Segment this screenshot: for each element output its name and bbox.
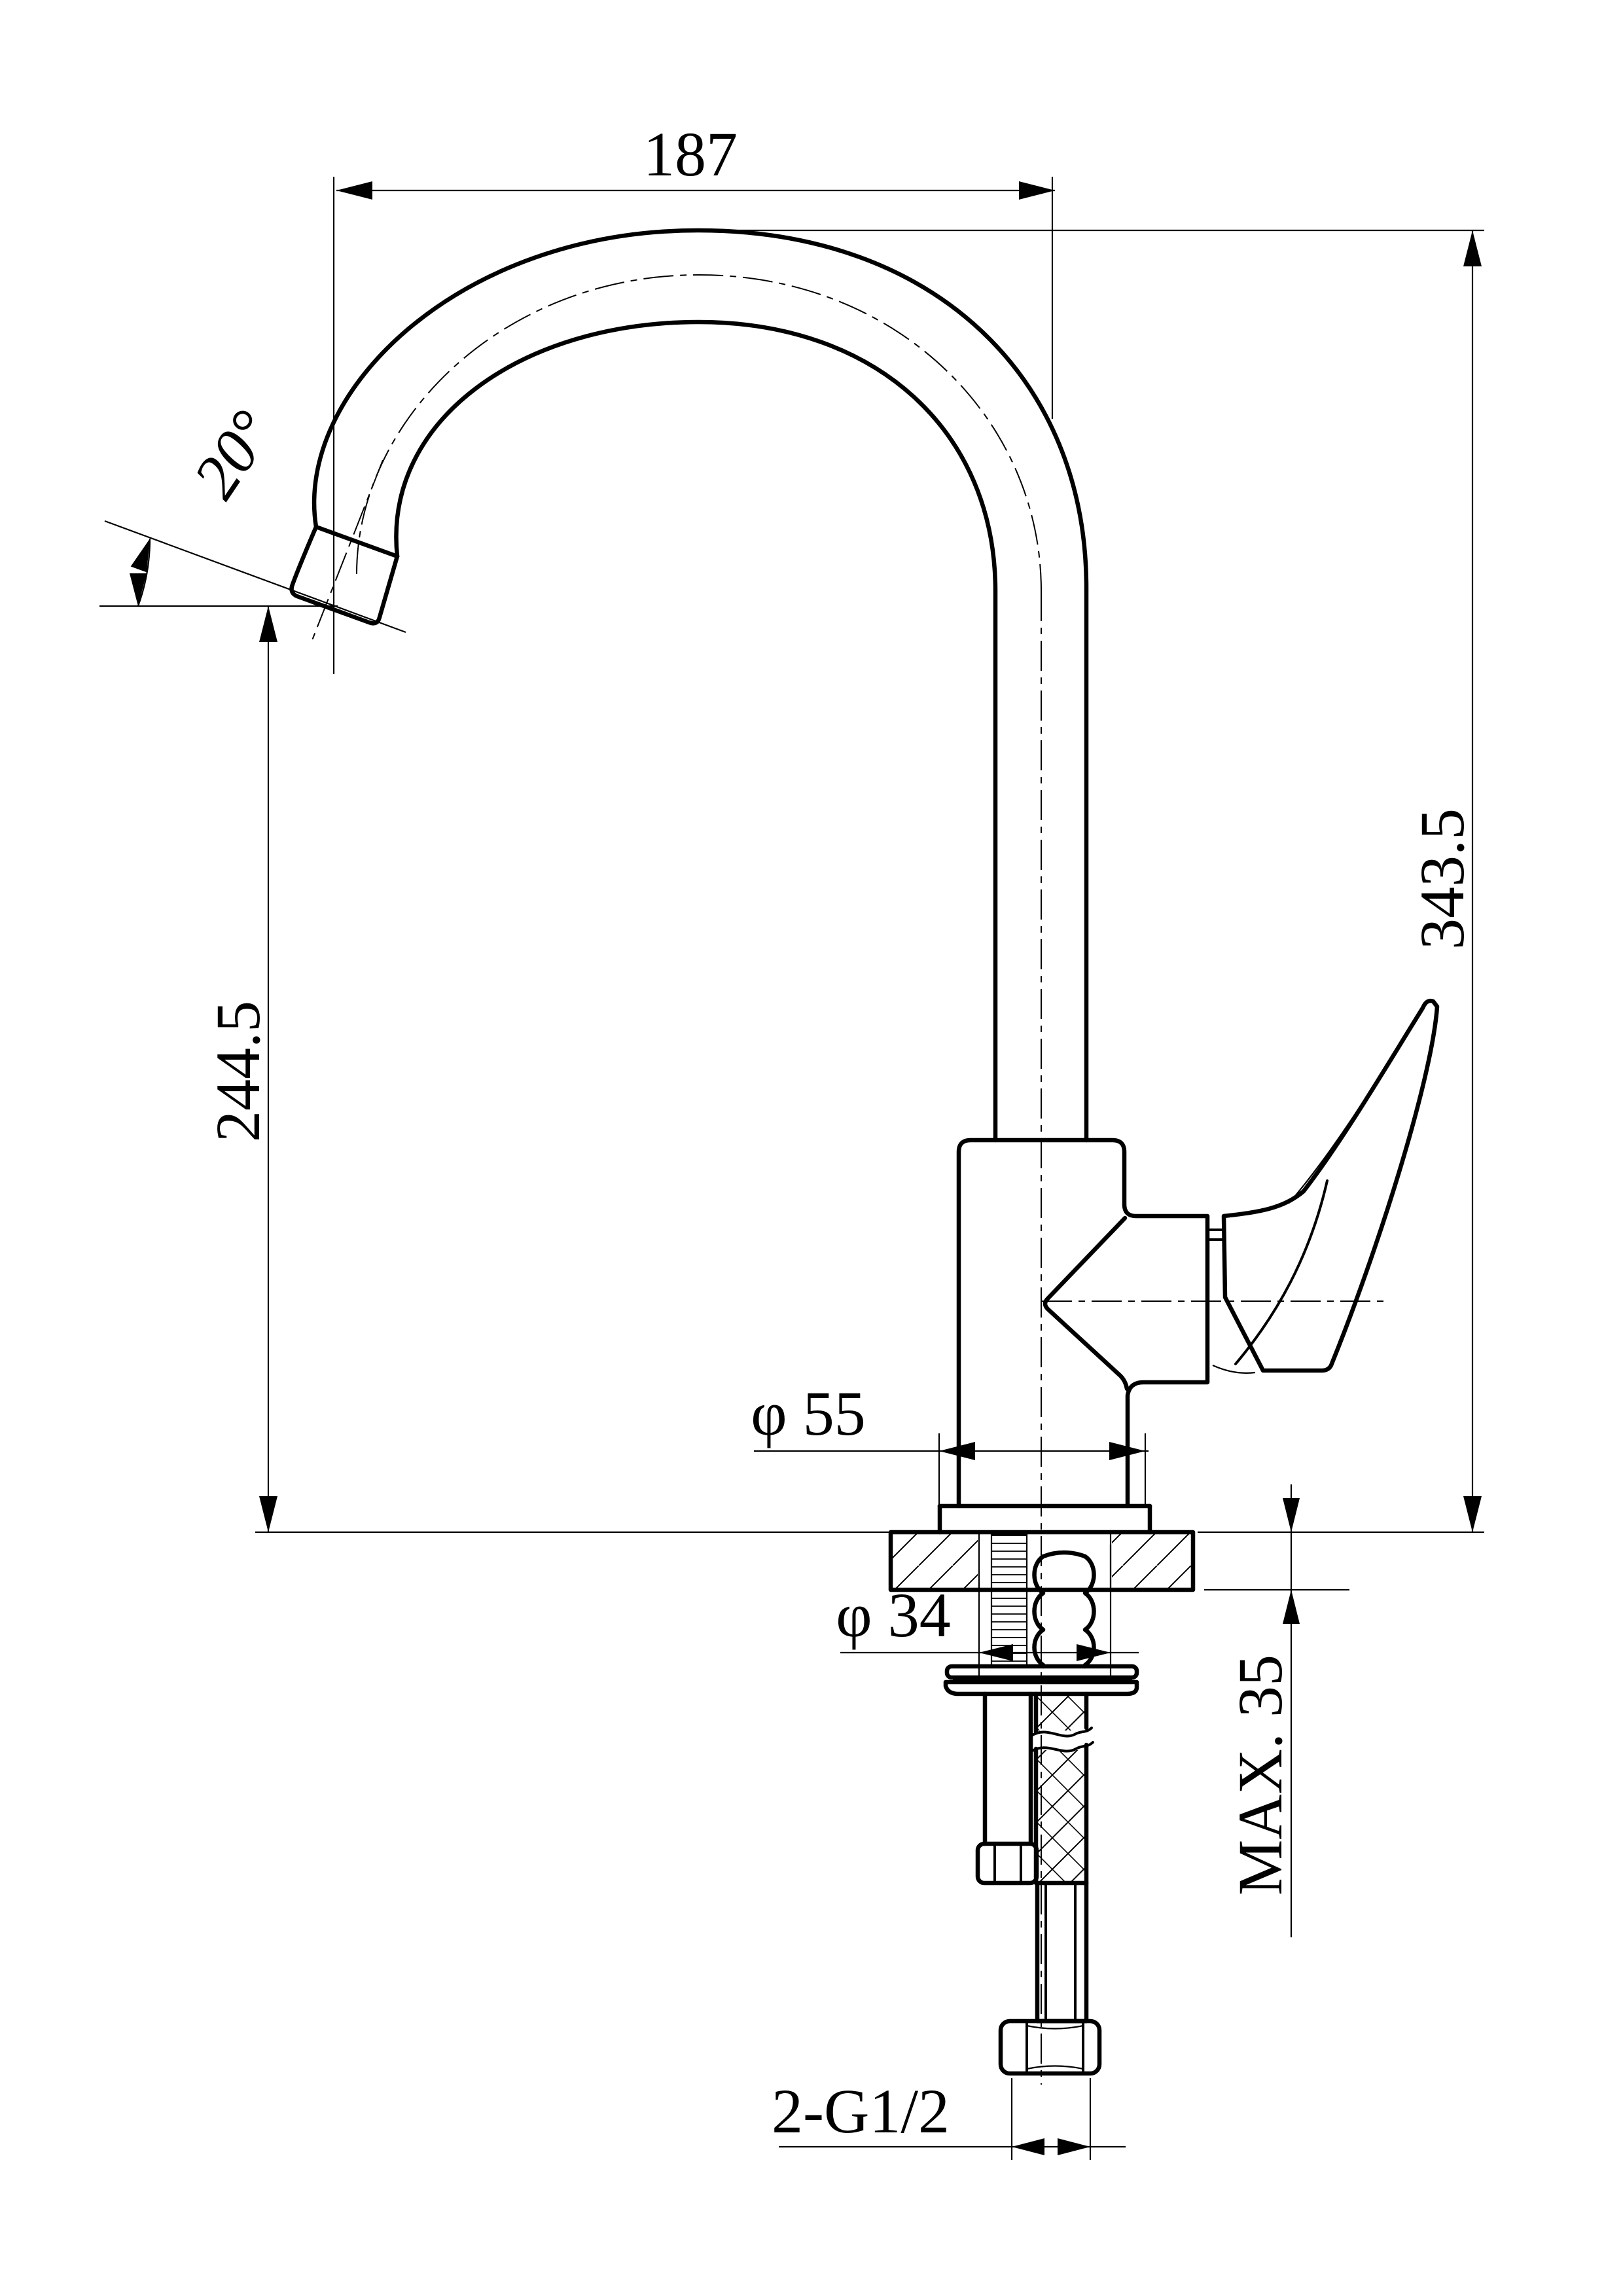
washer-plate-top (947, 1666, 1137, 1677)
faucet-technical-drawing: 187 20° 244.5 343.5 (0, 0, 1623, 2296)
dim-thread-spec-label: 2-G1/2 (772, 2076, 950, 2146)
hose-hex-nut (1001, 2021, 1099, 2073)
handle-base-arc (1213, 1365, 1255, 1373)
spout-outer-edge (314, 230, 1086, 1140)
dim-deck-thickness-label: MAX. 35 (1225, 1655, 1295, 1895)
hose-coupling-sleeve (1037, 1883, 1086, 2021)
handle-scoop-line (1236, 1181, 1327, 1364)
body-cone-notch (1045, 1218, 1127, 1389)
dim-spout-angle: 20° (99, 398, 406, 632)
dim-spout-reach: 187 (334, 119, 1055, 674)
lever-handle (1213, 1001, 1437, 1373)
centerlines (312, 275, 1384, 2085)
handle-outline (1224, 1001, 1437, 1371)
dim-total-height: 343.5 (704, 230, 1484, 1532)
dim-spout-reach-label: 187 (643, 119, 738, 189)
counter-hatch-right (1112, 1534, 1192, 1588)
hose-braid-lower (1036, 1750, 1086, 1883)
dimensions: 187 20° 244.5 343.5 (99, 119, 1484, 2160)
spout-inner-edge (396, 322, 995, 1140)
dim-deck-thickness: MAX. 35 (1204, 1484, 1349, 1937)
base-ring (940, 1506, 1150, 1532)
gooseneck-spout (314, 230, 1086, 1140)
dim-thread-spec: 2-G1/2 (772, 2076, 1126, 2160)
dim-spout-angle-label: 20° (179, 398, 287, 510)
dim-hole-diameter-label: φ 34 (836, 1580, 950, 1650)
dim-body-diameter: φ 55 (751, 1378, 1149, 1505)
aerator-seam (316, 527, 397, 556)
dim-body-diameter-label: φ 55 (751, 1378, 865, 1448)
drawing-sheet: 187 20° 244.5 343.5 (0, 0, 1623, 2296)
mounting-stud-and-nut (978, 1694, 1037, 1883)
mounting-hex-nut (978, 1844, 1037, 1883)
dim-outlet-height-label: 244.5 (203, 1001, 273, 1142)
dim-total-height-label: 343.5 (1407, 808, 1477, 950)
hose-braid-upper (1036, 1694, 1086, 1731)
